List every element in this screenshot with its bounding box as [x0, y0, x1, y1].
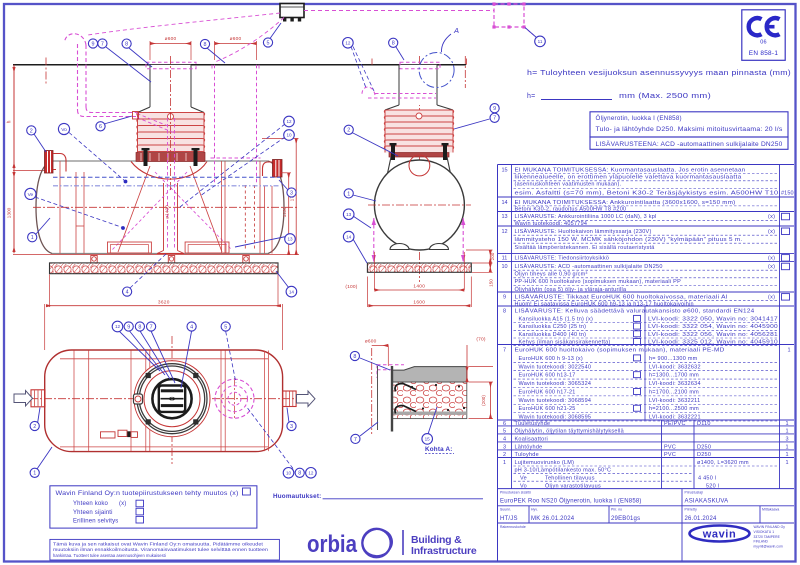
svg-text:1300: 1300 [7, 207, 13, 218]
svg-text:Kehys (ilman sisäkansirakennet: Kehys (ilman sisäkansirakennetta) [519, 340, 611, 346]
svg-text:Sisältää lämpöeristekannen. Ei: Sisältää lämpöeristekannen. Ei sisällä r… [515, 245, 656, 251]
svg-text:MK 26.01.2024: MK 26.01.2024 [531, 516, 575, 522]
svg-text:ø1400, L=3620 mm: ø1400, L=3620 mm [697, 460, 749, 466]
svg-text:EuroHUK 600 h13-17: EuroHUK 600 h13-17 [519, 373, 576, 379]
svg-text:Tulo- ja lähtöyhde D250. Maksi: Tulo- ja lähtöyhde D250. Maksimi mitoitu… [596, 126, 783, 133]
svg-text:6: 6 [99, 124, 102, 130]
svg-text:5: 5 [503, 428, 506, 434]
svg-text:Rakennuskohde: Rakennuskohde [500, 525, 526, 529]
svg-text:Wavin tuotekoodi: 3022540: Wavin tuotekoodi: 3022540 [519, 364, 592, 370]
svg-text:HT/JS: HT/JS [500, 516, 518, 522]
svg-text:12: 12 [501, 229, 507, 235]
svg-text:Wavin tuotekoodi: 4057794: Wavin tuotekoodi: 4057794 [515, 221, 588, 227]
svg-text:h=1300...1700 mm: h=1300...1700 mm [649, 373, 699, 379]
svg-text:3: 3 [290, 424, 293, 430]
svg-text:Öljyn varastotilavuus: Öljyn varastotilavuus [545, 482, 601, 489]
svg-text:Wavin tuotekoodi: 3068595: Wavin tuotekoodi: 3068595 [519, 415, 592, 421]
svg-text:5: 5 [267, 40, 270, 46]
svg-text:(100): (100) [345, 284, 357, 290]
svg-text:EI MUKANA TOIMITUKSESSA: Kuorm: EI MUKANA TOIMITUKSESSA: Kuormantasausla… [515, 167, 746, 173]
svg-text:Öljynerotin, luokka I (EN858): Öljynerotin, luokka I (EN858) [596, 115, 682, 122]
svg-text:LVI-koodi: 3322 050, Wavin no:: LVI-koodi: 3322 050, Wavin no: 3041417 [648, 316, 778, 322]
svg-text:esim. Asfaltti (s=70 mm), Beto: esim. Asfaltti (s=70 mm), Betoni K30-2 T… [515, 191, 779, 197]
svg-text:1: 1 [785, 428, 788, 434]
svg-text:8: 8 [392, 41, 395, 47]
svg-text:4 450 l: 4 450 l [698, 476, 716, 482]
svg-text:Yhteen koko: Yhteen koko [73, 501, 109, 507]
svg-text:EuroHUK 600 h21-25: EuroHUK 600 h21-25 [519, 406, 576, 412]
svg-text:(x): (x) [768, 256, 775, 262]
svg-text:D250: D250 [697, 452, 711, 458]
svg-text:10: 10 [286, 133, 292, 138]
svg-text:1230: 1230 [282, 206, 288, 217]
svg-text:Tämä kuva ja sen ratkaisut ova: Tämä kuva ja sen ratkaisut ovat Wavin Fi… [53, 542, 264, 547]
svg-text:12: 12 [286, 119, 292, 124]
svg-text:(x): (x) [119, 501, 126, 507]
svg-text:D250: D250 [697, 444, 711, 450]
svg-text:1: 1 [785, 460, 788, 466]
svg-text:(70): (70) [476, 337, 486, 343]
svg-text:Piirustuslaji: Piirustuslaji [685, 490, 704, 494]
svg-text:D110: D110 [697, 421, 711, 427]
svg-text:Öljyhälytin, öljytilan täyttym: Öljyhälytin, öljytilan täyttymishälytyks… [515, 427, 625, 434]
svg-text:LVI-koodi: 3322 056, Wavin no:: LVI-koodi: 3322 056, Wavin no: 4056281 [648, 332, 778, 338]
svg-text:Ve: Ve [520, 476, 527, 482]
svg-text:Huom! Ei saatavissa EuroHUK 60: Huom! Ei saatavissa EuroHUK 600 h9-13 ja… [515, 301, 694, 307]
svg-text:Lähtöyhde: Lähtöyhde [515, 444, 543, 450]
svg-text:Wavin tuotekoodi: 3068594: Wavin tuotekoodi: 3068594 [519, 398, 592, 404]
svg-text:Koalisaattori: Koalisaattori [515, 436, 549, 442]
svg-text:14: 14 [346, 234, 352, 239]
svg-text:5: 5 [224, 324, 227, 330]
svg-text:orbia: orbia [307, 531, 358, 558]
svg-text:Tehollinen tilavuus: Tehollinen tilavuus [545, 476, 595, 482]
svg-text:LVI-koodi: 3325 012, Wavin no:: LVI-koodi: 3325 012, Wavin no: 4045910 [648, 340, 778, 346]
svg-text:1400: 1400 [413, 284, 425, 290]
svg-text:8: 8 [503, 309, 506, 315]
svg-text:h= Tuloyhteen vesijuoksun a: h= Tuloyhteen vesijuoksun asennussyvyys … [527, 70, 791, 77]
svg-text:12: 12 [308, 470, 314, 475]
svg-text:LISÄVARUSTE: Tiedonsiirtoyksik: LISÄVARUSTE: Tiedonsiirtoyksikkö [515, 255, 610, 262]
svg-text:2: 2 [347, 128, 350, 134]
svg-text:1: 1 [503, 460, 506, 466]
svg-text:liikennealueelle, on erottimen: liikennealueelle, on erottimen yläpuolel… [515, 175, 743, 181]
svg-text:Wavin tuotekoodi: 3065324: Wavin tuotekoodi: 3065324 [519, 381, 592, 387]
svg-text:7: 7 [493, 116, 496, 122]
svg-text:06: 06 [760, 40, 767, 46]
svg-text:15: 15 [501, 167, 507, 173]
svg-text:9: 9 [127, 324, 130, 330]
svg-text:Yhteen sijainti: Yhteen sijainti [73, 510, 113, 516]
svg-text:3620: 3620 [158, 299, 170, 305]
svg-text:h= 900...1300 mm: h= 900...1300 mm [649, 356, 698, 362]
svg-text:1: 1 [33, 471, 36, 477]
svg-text:200: 200 [490, 252, 495, 260]
svg-text:14: 14 [501, 200, 507, 206]
svg-text:PVC: PVC [664, 444, 676, 450]
svg-text:VISIOKATU 1: VISIOKATU 1 [754, 530, 775, 534]
svg-text:PP-HUK 600 huoltokaivo (sopimu: PP-HUK 600 huoltokaivo (sopimuksen mukaa… [515, 279, 682, 285]
svg-text:LISÄVARUSTE: ACD -automaattine: LISÄVARUSTE: ACD -automaattinen sulkijal… [515, 263, 663, 270]
svg-text:WAVIN FINLAND Oy: WAVIN FINLAND Oy [754, 525, 786, 529]
svg-text:EuroHUK 600 huoltokaivo (sopim: EuroHUK 600 huoltokaivo (sopimuksen muka… [515, 348, 725, 354]
svg-text:13: 13 [501, 214, 507, 220]
svg-text:7: 7 [354, 437, 357, 443]
svg-text:2: 2 [503, 452, 506, 458]
svg-text:(x): (x) [768, 214, 775, 220]
svg-text:ASIAKASKUVA: ASIAKASKUVA [685, 499, 729, 505]
svg-text:15: 15 [425, 437, 431, 442]
svg-text:Öljyhälytin (osa 5) öljy- ja y: Öljyhälytin (osa 5) öljy- ja yläraja-ant… [515, 286, 627, 293]
svg-text:Hyv.: Hyv. [531, 508, 538, 512]
svg-text:1600: 1600 [413, 299, 425, 305]
svg-text:myynti@wavin.com: myynti@wavin.com [754, 545, 783, 549]
svg-text:11: 11 [502, 256, 508, 262]
svg-text:Kansiluokka A15 (1.5 tn) (x): Kansiluokka A15 (1.5 tn) (x) [519, 316, 594, 322]
svg-text:Infrastructure: Infrastructure [411, 545, 477, 557]
svg-text:8: 8 [353, 354, 356, 360]
svg-text:1: 1 [785, 421, 788, 427]
svg-text:Piirretty: Piirretty [685, 508, 698, 512]
svg-text:(x): (x) [768, 229, 775, 235]
svg-text:14: 14 [289, 289, 295, 294]
svg-text:29EB01gs: 29EB01gs [611, 516, 640, 522]
svg-text:26.01.2024: 26.01.2024 [685, 516, 717, 522]
svg-text:Tuuletusyhde: Tuuletusyhde [515, 421, 551, 427]
svg-text:Erillinen selvitys: Erillinen selvitys [73, 519, 118, 525]
svg-text:Lujitemuovirunko (LM): Lujitemuovirunko (LM) [515, 460, 575, 466]
svg-text:LVI-koodi: 3632632: LVI-koodi: 3632632 [649, 364, 701, 370]
svg-text:3: 3 [290, 190, 293, 196]
svg-text:1: 1 [31, 235, 34, 241]
svg-text:4: 4 [503, 436, 506, 442]
svg-text:ø600: ø600 [165, 36, 177, 42]
svg-text:2: 2 [30, 128, 33, 134]
svg-text:ø1400: ø1400 [165, 205, 171, 219]
svg-text:(x): (x) [768, 264, 775, 270]
svg-text:EuroHUK 600 h 9-13 (x): EuroHUK 600 h 9-13 (x) [519, 356, 584, 362]
svg-text:Öljyn tiheys alle 0,90 g/cm³: Öljyn tiheys alle 0,90 g/cm³ [515, 271, 588, 278]
svg-text:3: 3 [503, 444, 506, 450]
svg-text:wavin: wavin [702, 528, 737, 540]
svg-text:1: 1 [785, 452, 788, 458]
svg-text:4: 4 [190, 324, 193, 330]
svg-text:(200): (200) [481, 395, 486, 406]
svg-text:h=1700...2100 mm: h=1700...2100 mm [649, 389, 699, 395]
svg-text:h=: h= [527, 93, 535, 100]
svg-text:LISÄVARUSTE: Huoltokaivon lämm: LISÄVARUSTE: Huoltokaivon lämmityssarja … [515, 228, 652, 235]
svg-text:Betoni K30-2, raudoitus A500HW: Betoni K30-2, raudoitus A500HW T8 #200 [515, 207, 627, 213]
svg-text:8: 8 [125, 42, 128, 48]
svg-text:ø600: ø600 [230, 36, 242, 42]
svg-text:Vo: Vo [520, 483, 527, 489]
svg-text:LISÄVARUSTE: Tikkaat EuroHUK 6: LISÄVARUSTE: Tikkaat EuroHUK 600 huoltok… [515, 294, 728, 301]
svg-text:Vo: Vo [61, 127, 67, 133]
svg-text:LVI-koodi: 3632211: LVI-koodi: 3632211 [649, 398, 700, 404]
svg-text:Piir. no: Piir. no [611, 508, 622, 512]
svg-text:11: 11 [538, 39, 543, 44]
svg-text:PE/PVC: PE/PVC [664, 421, 686, 427]
svg-text:LISÄVARUSTE: Kelluva säädettäv: LISÄVARUSTE: Kelluva säädettävä valuraut… [515, 308, 755, 315]
svg-text:Ve: Ve [28, 192, 34, 198]
svg-text:EuroPEK Roo NS20 Öljynerotin,: EuroPEK Roo NS20 Öljynerotin, luokka I (… [500, 498, 642, 505]
svg-text:LISÄVARUSTE: Ankkurointiliina: LISÄVARUSTE: Ankkurointiliina 1000 LC (d… [515, 213, 657, 220]
svg-text:mm (Max. 2500 mm): mm (Max. 2500 mm) [619, 93, 711, 100]
svg-text:1: 1 [787, 348, 790, 354]
svg-text:PVC: PVC [664, 452, 676, 458]
svg-text:4: 4 [126, 290, 129, 296]
svg-text:LVI-koodi: 3632634: LVI-koodi: 3632634 [649, 381, 701, 387]
svg-text:Tuloyhde: Tuloyhde [515, 452, 539, 458]
svg-text:10: 10 [501, 264, 507, 270]
svg-text:2: 2 [33, 424, 36, 430]
svg-text:Huomautukset:: Huomautukset: [273, 493, 321, 500]
svg-text:7: 7 [101, 41, 104, 47]
svg-text:8: 8 [298, 471, 301, 477]
svg-text:lämmitysteho 150 W. MCMK sähkö: lämmitysteho 150 W. MCMK sähköjohdon (23… [515, 237, 743, 243]
svg-text:Mittakaava: Mittakaava [762, 508, 779, 512]
svg-text:9: 9 [503, 295, 506, 301]
svg-text:#150: #150 [781, 191, 794, 197]
svg-text:33720 TAMPERE: 33720 TAMPERE [754, 535, 781, 539]
svg-text:6: 6 [503, 421, 506, 427]
svg-text:3: 3 [785, 436, 788, 442]
svg-text:9: 9 [92, 41, 95, 47]
svg-text:150: 150 [489, 279, 494, 287]
svg-text:EuroHUK 600 h17-21: EuroHUK 600 h17-21 [519, 389, 576, 395]
svg-text:520 l: 520 l [706, 483, 719, 489]
svg-text:LISÄVARUSTEENA: ACD -automaatt: LISÄVARUSTEENA: ACD -automaattinen sulki… [596, 141, 783, 148]
svg-text:12: 12 [345, 40, 351, 45]
svg-text:13: 13 [346, 212, 352, 217]
svg-text:hankintaa. Tuotteet tulee asen: hankintaa. Tuotteet tulee asentaa asennu… [53, 553, 166, 558]
svg-text:pH 3-10/Lämpötilankesto max.: pH 3-10/Lämpötilankesto max. 50°C [515, 468, 612, 474]
svg-text:EI MUKANA TOIMITUKSESSA: Ankku: EI MUKANA TOIMITUKSESSA: Ankkurointilaat… [515, 200, 736, 206]
svg-text:9: 9 [493, 106, 496, 112]
svg-text:h: h [7, 120, 13, 123]
svg-text:Kansiluokka C250 (25 tn): Kansiluokka C250 (25 tn) [519, 324, 587, 330]
svg-text:Kansiluokka D400 (40 tn): Kansiluokka D400 (40 tn) [519, 332, 587, 338]
svg-text:ø600: ø600 [365, 339, 377, 345]
svg-text:muutoksiin ilman ennakkoilmoit: muutoksiin ilman ennakkoilmoitusta. Vira… [53, 547, 269, 552]
svg-text:13: 13 [287, 237, 293, 242]
svg-text:1: 1 [347, 191, 350, 197]
svg-text:Wavin Finland Oy:n tuotepiirus: Wavin Finland Oy:n tuotepiirustukseen te… [56, 491, 239, 497]
svg-text:Piirustuksen sisältö: Piirustuksen sisältö [500, 490, 531, 494]
svg-text:Kohta A:: Kohta A: [425, 446, 453, 453]
svg-text:12: 12 [115, 324, 121, 329]
svg-text:8: 8 [204, 42, 207, 48]
svg-text:FINLAND: FINLAND [754, 540, 769, 544]
svg-text:Suunn.: Suunn. [500, 508, 511, 512]
svg-text:h=2100...2500 mm: h=2100...2500 mm [649, 406, 699, 412]
svg-text:(x): (x) [768, 295, 775, 301]
svg-text:7: 7 [150, 324, 153, 330]
svg-text:10: 10 [286, 470, 292, 475]
svg-text:(asennuskohteen vaatimusten mu: (asennuskohteen vaatimusten mukaan). [515, 182, 622, 188]
svg-text:8: 8 [138, 324, 141, 330]
svg-text:A: A [453, 26, 459, 35]
svg-text:1: 1 [785, 444, 788, 450]
svg-text:EN 858-1: EN 858-1 [749, 50, 779, 57]
svg-text:7: 7 [503, 348, 506, 354]
svg-text:LVI-koodi: 3632221: LVI-koodi: 3632221 [649, 415, 701, 421]
svg-text:LVI-koodi: 3322 054, Wavin no:: LVI-koodi: 3322 054, Wavin no: 4045900 [648, 324, 778, 330]
